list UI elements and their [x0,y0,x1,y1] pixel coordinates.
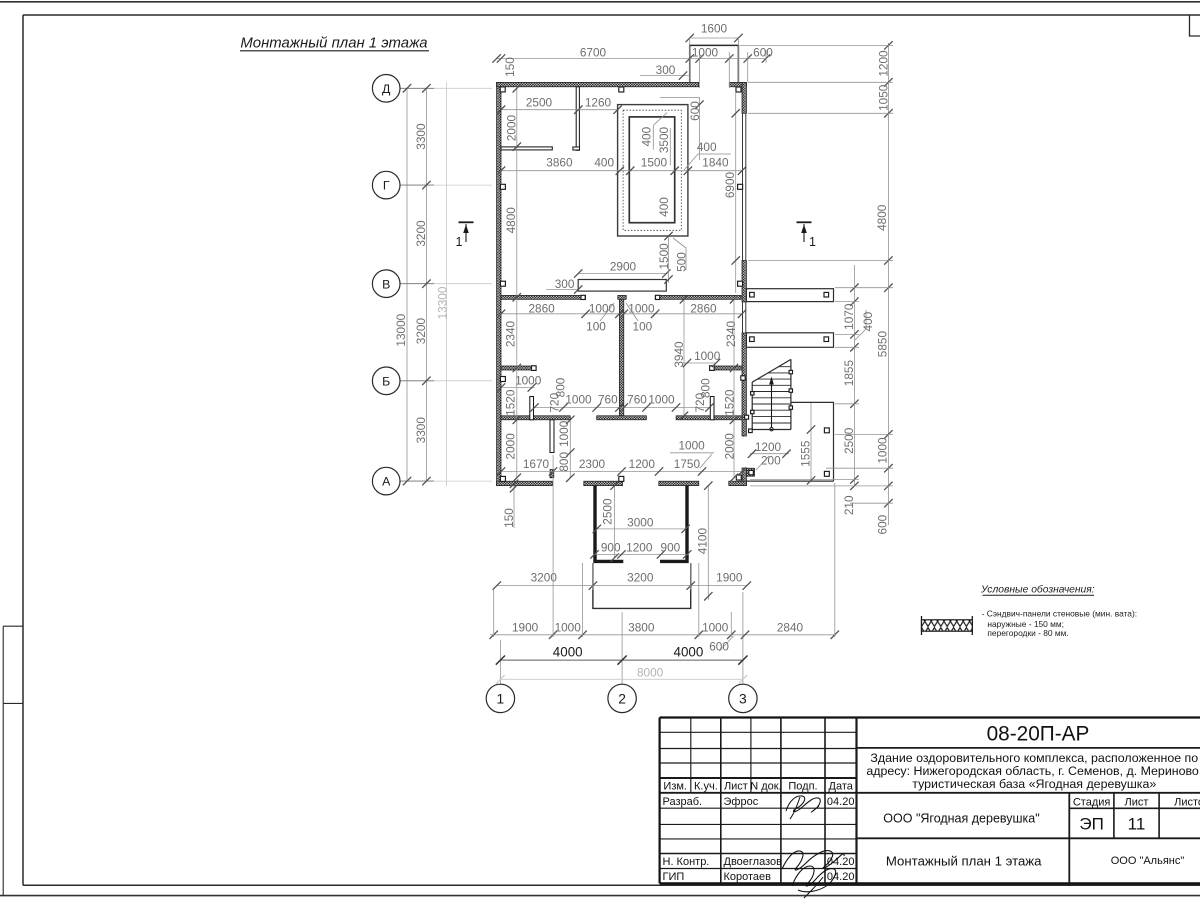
svg-text:Лист: Лист [724,780,748,792]
svg-text:3300: 3300 [414,123,428,150]
svg-text:2860: 2860 [528,302,555,316]
svg-text:3200: 3200 [414,318,428,345]
svg-text:1500: 1500 [641,156,668,170]
svg-text:4100: 4100 [696,528,710,555]
svg-text:3800: 3800 [628,620,655,634]
svg-text:1200: 1200 [629,457,656,471]
svg-text:400: 400 [861,311,875,331]
svg-text:адресу: Нижегородская область,: адресу: Нижегородская область, г. Семено… [866,764,1200,778]
svg-text:04.20: 04.20 [827,856,855,868]
svg-text:В: В [382,277,390,291]
svg-text:2000: 2000 [505,114,519,141]
svg-text:3200: 3200 [414,220,428,247]
svg-text:1000: 1000 [692,45,719,59]
svg-text:1520: 1520 [504,389,518,416]
svg-text:1: 1 [497,691,505,706]
svg-text:Здание оздоровительного компле: Здание оздоровительного комплекса, распо… [870,751,1198,765]
svg-text:Условные обозначения:: Условные обозначения: [980,584,1095,596]
svg-text:1750: 1750 [674,457,701,471]
svg-text:Изм.: Изм. [663,780,687,792]
svg-text:1200: 1200 [626,541,653,555]
svg-text:2000: 2000 [723,433,737,460]
svg-text:Эфрос: Эфрос [724,796,759,808]
svg-text:3000: 3000 [627,515,654,529]
svg-text:400: 400 [697,140,717,154]
svg-text:1855: 1855 [842,360,856,387]
svg-text:Листов: Листов [1174,796,1200,808]
svg-text:Стадия: Стадия [1073,796,1111,808]
svg-text:500: 500 [674,252,688,272]
svg-text:ООО "Ягодная деревушка": ООО "Ягодная деревушка" [883,812,1039,826]
svg-text:1520: 1520 [723,389,737,416]
svg-text:800: 800 [698,378,712,398]
svg-text:760: 760 [627,393,647,407]
svg-text:2500: 2500 [601,498,615,525]
svg-text:3: 3 [739,691,747,706]
svg-text:1600: 1600 [701,22,728,36]
svg-text:перегородки - 80 мм.: перегородки - 80 мм. [987,628,1068,638]
svg-text:Подп.: Подп. [788,780,817,792]
svg-text:ГИП: ГИП [663,871,685,883]
svg-text:13000: 13000 [394,313,408,346]
svg-text:600: 600 [688,101,702,121]
svg-text:2340: 2340 [504,320,518,347]
svg-text:1900: 1900 [512,620,539,634]
svg-text:100: 100 [633,320,653,334]
svg-text:3500: 3500 [657,126,671,153]
svg-text:2900: 2900 [610,259,637,273]
svg-text:900: 900 [601,541,621,555]
svg-text:800: 800 [553,377,567,397]
svg-text:600: 600 [753,45,773,59]
svg-text:1050: 1050 [877,84,891,111]
svg-text:К.уч.: К.уч. [694,780,718,792]
svg-text:8000: 8000 [637,665,664,679]
svg-text:4000: 4000 [553,645,583,660]
svg-text:3860: 3860 [546,156,573,170]
svg-text:2860: 2860 [690,302,717,316]
svg-text:2000: 2000 [504,433,518,460]
svg-text:2500: 2500 [526,96,553,110]
svg-text:туристическая база «Ягодная де: туристическая база «Ягодная деревушка» [912,777,1156,791]
svg-text:1: 1 [809,235,816,249]
svg-text:- Сэндвич-панели стеновые (мин: - Сэндвич-панели стеновые (мин. вата): [982,609,1138,619]
svg-text:ООО "Альянс": ООО "Альянс" [1111,855,1185,867]
svg-text:5850: 5850 [875,331,889,358]
svg-text:1900: 1900 [716,571,743,585]
svg-text:150: 150 [503,57,517,77]
svg-text:1500: 1500 [657,243,671,270]
svg-text:800: 800 [557,452,571,472]
svg-text:4800: 4800 [504,207,518,234]
svg-text:6700: 6700 [580,46,607,60]
svg-text:1000: 1000 [555,620,582,634]
svg-text:04.20: 04.20 [827,796,855,808]
svg-text:3200: 3200 [627,571,654,585]
svg-text:1000: 1000 [648,393,675,407]
svg-text:Двоеглазов: Двоеглазов [724,856,783,868]
svg-text:Монтажный план 1 этажа: Монтажный план 1 этажа [240,36,427,52]
svg-text:2840: 2840 [777,620,804,634]
svg-text:4800: 4800 [875,204,889,231]
svg-text:300: 300 [656,63,676,77]
svg-text:2500: 2500 [842,427,856,454]
svg-text:1070: 1070 [842,303,856,330]
svg-text:Д: Д [382,82,391,96]
svg-text:1000: 1000 [678,439,705,453]
svg-text:600: 600 [875,514,889,534]
svg-text:Н. Контр.: Н. Контр. [663,856,710,868]
svg-text:6900: 6900 [723,171,737,198]
svg-text:Монтажный план 1 этажа: Монтажный план 1 этажа [886,854,1042,869]
svg-text:1000: 1000 [694,349,721,363]
svg-text:1: 1 [456,235,463,249]
svg-text:Б: Б [382,374,390,388]
svg-text:Дата: Дата [829,780,854,792]
svg-text:1840: 1840 [702,156,729,170]
svg-text:200: 200 [761,454,781,468]
svg-text:1000: 1000 [557,420,571,447]
svg-text:1000: 1000 [702,620,729,634]
svg-text:210: 210 [842,495,856,515]
svg-text:400: 400 [639,126,653,146]
svg-text:1000: 1000 [589,302,616,316]
svg-text:1000: 1000 [875,437,889,464]
svg-text:1000: 1000 [515,373,542,387]
svg-text:1200: 1200 [755,440,782,454]
svg-text:4000: 4000 [674,645,704,660]
svg-text:Коротаев: Коротаев [724,871,772,883]
svg-text:1200: 1200 [877,50,891,77]
svg-text:13300: 13300 [435,286,449,319]
svg-text:1555: 1555 [799,440,813,467]
svg-text:400: 400 [594,156,614,170]
svg-text:2340: 2340 [724,320,738,347]
svg-text:3300: 3300 [414,417,428,444]
svg-text:760: 760 [598,393,618,407]
svg-text:Лист: Лист [1125,796,1149,808]
svg-text:А: А [382,475,391,489]
svg-text:Разраб.: Разраб. [663,796,703,808]
svg-text:3940: 3940 [672,341,686,368]
svg-text:N док.: N док. [750,780,781,792]
svg-text:Г: Г [383,179,390,193]
svg-text:1670: 1670 [523,457,550,471]
svg-text:1260: 1260 [585,96,612,110]
svg-text:300: 300 [555,277,575,291]
svg-text:600: 600 [709,639,729,653]
svg-text:08-20П-АР: 08-20П-АР [987,723,1090,746]
svg-text:2300: 2300 [579,457,606,471]
svg-text:ЭП: ЭП [1079,815,1103,834]
svg-text:150: 150 [502,508,516,528]
svg-text:1000: 1000 [565,393,592,407]
svg-text:100: 100 [586,320,606,334]
svg-text:1000: 1000 [628,302,655,316]
svg-text:2: 2 [618,691,626,706]
svg-text:11: 11 [1128,815,1146,834]
svg-text:400: 400 [657,197,671,217]
svg-text:900: 900 [661,541,681,555]
